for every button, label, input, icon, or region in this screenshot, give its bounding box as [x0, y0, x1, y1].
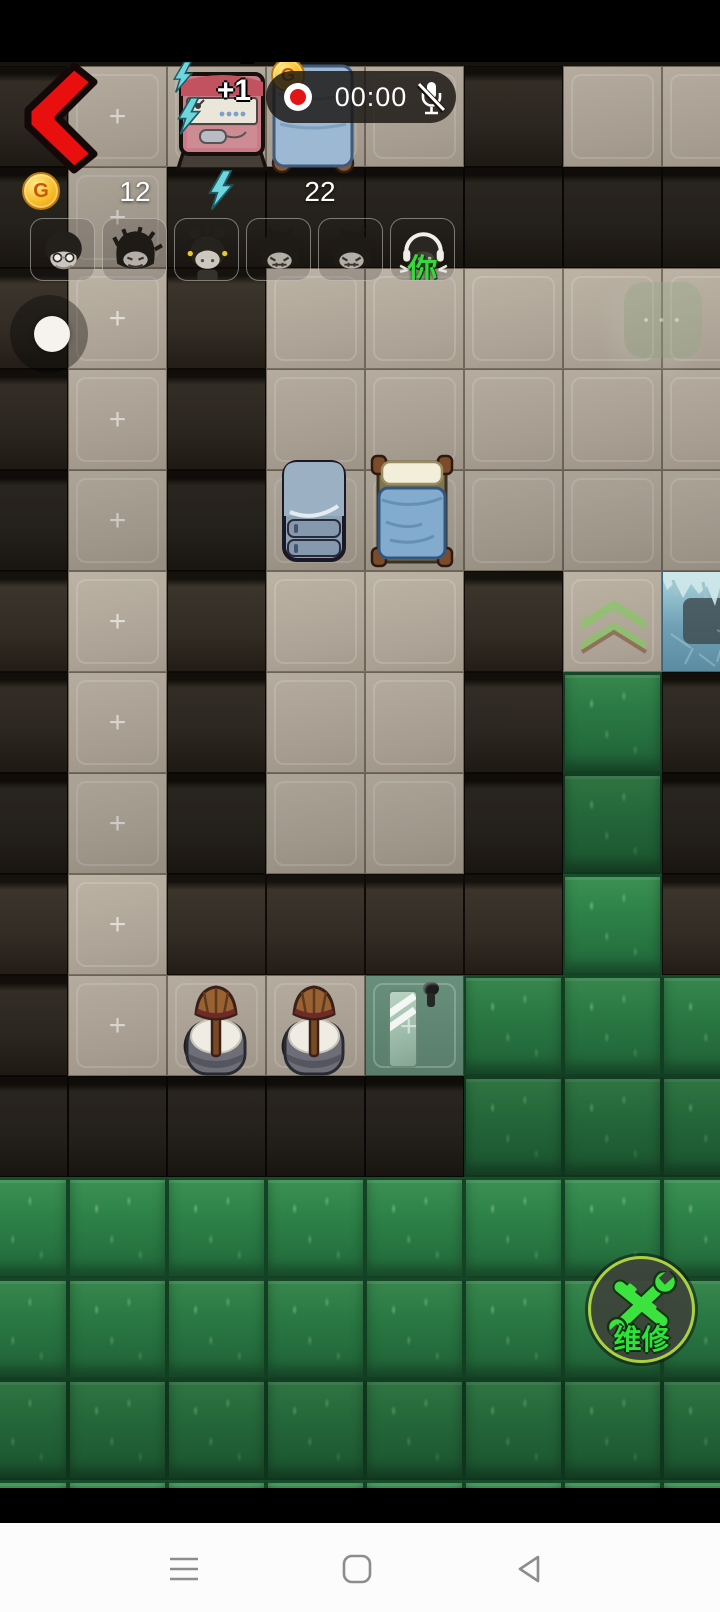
nav-back-button[interactable] — [504, 1543, 556, 1595]
broom-bucket[interactable] — [273, 984, 355, 1080]
tile-dark-wall — [0, 672, 68, 773]
tile-grass — [0, 1480, 68, 1488]
tile-floor — [662, 66, 720, 167]
avatar-slot-player[interactable]: 你 — [390, 218, 455, 281]
tile-grass — [266, 1480, 365, 1488]
tile-grass — [464, 1379, 563, 1480]
tile-grass — [464, 1076, 563, 1177]
tile-grass — [563, 975, 662, 1076]
tile-grass — [464, 975, 563, 1076]
tile-grass — [68, 1379, 167, 1480]
repair-label: 维修 — [591, 1318, 692, 1358]
tile-dark-wall — [464, 672, 563, 773]
nav-menu-button[interactable] — [158, 1543, 210, 1595]
bottom-black-strip — [0, 1488, 720, 1523]
floor-plus-mark: + — [69, 471, 166, 570]
tile-dark-wall — [68, 1076, 167, 1177]
game-viewport[interactable]: ++++++ ++++ + — [0, 0, 720, 1488]
tile-grass — [563, 1379, 662, 1480]
tile-dark-wall — [464, 66, 563, 167]
tile-grass — [563, 1480, 662, 1488]
mic-muted-icon[interactable] — [414, 80, 448, 116]
energy-bolt-icon — [207, 170, 235, 210]
tile-floor — [266, 369, 365, 470]
back-button[interactable] — [16, 62, 98, 174]
tile-floor — [464, 470, 563, 571]
screen-record-pill[interactable]: 00:00 — [266, 71, 456, 123]
tile-grass — [464, 1480, 563, 1488]
home-square-icon — [341, 1553, 373, 1585]
avatar-slot-3[interactable] — [174, 218, 239, 281]
tile-dark-wall — [167, 268, 266, 369]
avatar-slot-5[interactable] — [318, 218, 383, 281]
phone-screen: ++++++ ++++ + — [0, 0, 720, 1612]
tile-floor — [464, 369, 563, 470]
energy-count: 22 — [290, 176, 350, 208]
record-timer: 00:00 — [324, 71, 418, 123]
tile-dark-wall — [662, 874, 720, 975]
tile-grass — [167, 1278, 266, 1379]
tile-dark-wall — [167, 874, 266, 975]
tile-floor-with-plus: + — [68, 672, 167, 773]
tile-grass — [365, 1278, 464, 1379]
floor-plus-mark: + — [69, 774, 166, 873]
tile-dark-wall — [464, 571, 563, 672]
tile-grass — [365, 1177, 464, 1278]
tile-dark-wall — [662, 167, 720, 268]
tile-floor-with-plus: + — [68, 874, 167, 975]
tile-grass — [0, 1177, 68, 1278]
tile-grass — [167, 1480, 266, 1488]
nav-home-button[interactable] — [331, 1543, 383, 1595]
tile-floor — [365, 773, 464, 874]
tile-dark-wall — [167, 571, 266, 672]
tile-dark-wall — [0, 470, 68, 571]
tile-grass — [563, 672, 662, 773]
tile-floor — [563, 369, 662, 470]
avatar-girl-buns — [175, 219, 239, 281]
tile-dark-wall — [662, 773, 720, 874]
tile-floor — [662, 369, 720, 470]
tile-grass — [266, 1379, 365, 1480]
tile-floor-with-plus: + — [68, 773, 167, 874]
avatar-slot-1[interactable] — [30, 218, 95, 281]
tile-dark-wall — [563, 167, 662, 268]
tile-floor — [563, 66, 662, 167]
lightning-spark-icon — [172, 60, 194, 94]
avatar-slot-2[interactable] — [102, 218, 167, 281]
floor-plus-mark: + — [69, 976, 166, 1075]
tile-grass — [365, 1379, 464, 1480]
tile-dark-wall — [0, 1076, 68, 1177]
upgrade-chevron-icon — [576, 594, 652, 660]
tile-floor — [266, 571, 365, 672]
tile-door-floor[interactable]: + — [365, 975, 464, 1076]
tile-grass — [0, 1278, 68, 1379]
tile-dark-wall — [662, 672, 720, 773]
tile-floor-upgrade-chevron — [563, 571, 662, 672]
coin-icon: G — [22, 172, 60, 210]
tile-floor — [365, 268, 464, 369]
tile-dark-wall — [0, 571, 68, 672]
door-handle-pin — [422, 982, 440, 1008]
floor-plus-mark: + — [69, 875, 166, 974]
tile-grass — [68, 1480, 167, 1488]
tile-floor-with-plus: + — [68, 470, 167, 571]
floor-plus-mark: + — [69, 370, 166, 469]
faded-action-button[interactable]: • • • — [624, 282, 702, 358]
tile-grass — [167, 1177, 266, 1278]
tile-floor-with-plus: + — [68, 369, 167, 470]
status-bar — [0, 0, 720, 62]
avatar-slot-4[interactable] — [246, 218, 311, 281]
joystick-knob[interactable] — [34, 316, 70, 352]
tile-floor — [365, 672, 464, 773]
tile-floor — [266, 773, 365, 874]
avatar-elder-glasses — [31, 219, 95, 281]
tile-dark-wall — [464, 874, 563, 975]
tile-dark-wall — [167, 773, 266, 874]
player-tag: 你 — [391, 245, 454, 281]
tile-grass — [662, 975, 720, 1076]
lightning-spark-icon — [176, 94, 202, 138]
frozen-block-icon — [663, 572, 720, 673]
tile-dark-wall — [167, 470, 266, 571]
tile-grass — [266, 1177, 365, 1278]
tile-grass — [662, 1076, 720, 1177]
tile-dark-wall — [0, 773, 68, 874]
tile-dark-wall — [167, 369, 266, 470]
tile-grass — [0, 1379, 68, 1480]
door-plus-mark: + — [400, 1010, 418, 1044]
tile-floor — [266, 268, 365, 369]
tile-dark-wall — [365, 874, 464, 975]
tile-dark-wall — [0, 975, 68, 1076]
tile-dark-wall — [464, 167, 563, 268]
tile-floor — [464, 268, 563, 369]
tile-grass — [365, 1480, 464, 1488]
tile-grass — [167, 1379, 266, 1480]
tile-floor-with-plus: + — [68, 571, 167, 672]
coin-count: 12 — [105, 176, 165, 208]
tile-dark-wall — [266, 1076, 365, 1177]
tile-ice-block — [662, 571, 720, 672]
tile-floor — [365, 571, 464, 672]
tile-grass — [563, 773, 662, 874]
tile-floor — [563, 470, 662, 571]
tile-dark-wall — [167, 1076, 266, 1177]
back-triangle-icon — [514, 1553, 546, 1585]
tile-grass — [662, 1480, 720, 1488]
avatar-messy-grin — [319, 219, 383, 281]
tile-floor-with-plus: + — [68, 975, 167, 1076]
hamburger-menu-icon — [168, 1554, 200, 1584]
bonus-popup: +1 — [204, 74, 264, 108]
floor-plus-mark: + — [69, 572, 166, 671]
record-indicator-icon — [284, 83, 312, 111]
tile-grass — [563, 874, 662, 975]
tile-dark-wall — [0, 369, 68, 470]
avatar-messy-beard — [103, 219, 167, 281]
tile-dark-wall — [464, 773, 563, 874]
avatar-messy-grin — [247, 219, 311, 281]
bed-main[interactable] — [370, 452, 454, 570]
repair-button[interactable]: 维修 — [588, 1256, 695, 1363]
tile-floor — [266, 672, 365, 773]
tile-grass — [68, 1177, 167, 1278]
tile-dark-wall — [266, 874, 365, 975]
tile-grass — [662, 1177, 720, 1278]
tile-grass — [464, 1278, 563, 1379]
tile-grass — [68, 1278, 167, 1379]
tile-grass — [464, 1177, 563, 1278]
tile-grass — [266, 1278, 365, 1379]
floor-plus-mark: + — [69, 673, 166, 772]
tile-dark-wall — [167, 672, 266, 773]
tile-dark-wall — [0, 874, 68, 975]
broom-bucket[interactable] — [175, 984, 257, 1080]
fridge[interactable] — [282, 460, 346, 562]
tile-floor — [662, 470, 720, 571]
tile-dark-wall — [365, 1076, 464, 1177]
tile-grass — [662, 1379, 720, 1480]
tile-grass — [563, 1076, 662, 1177]
